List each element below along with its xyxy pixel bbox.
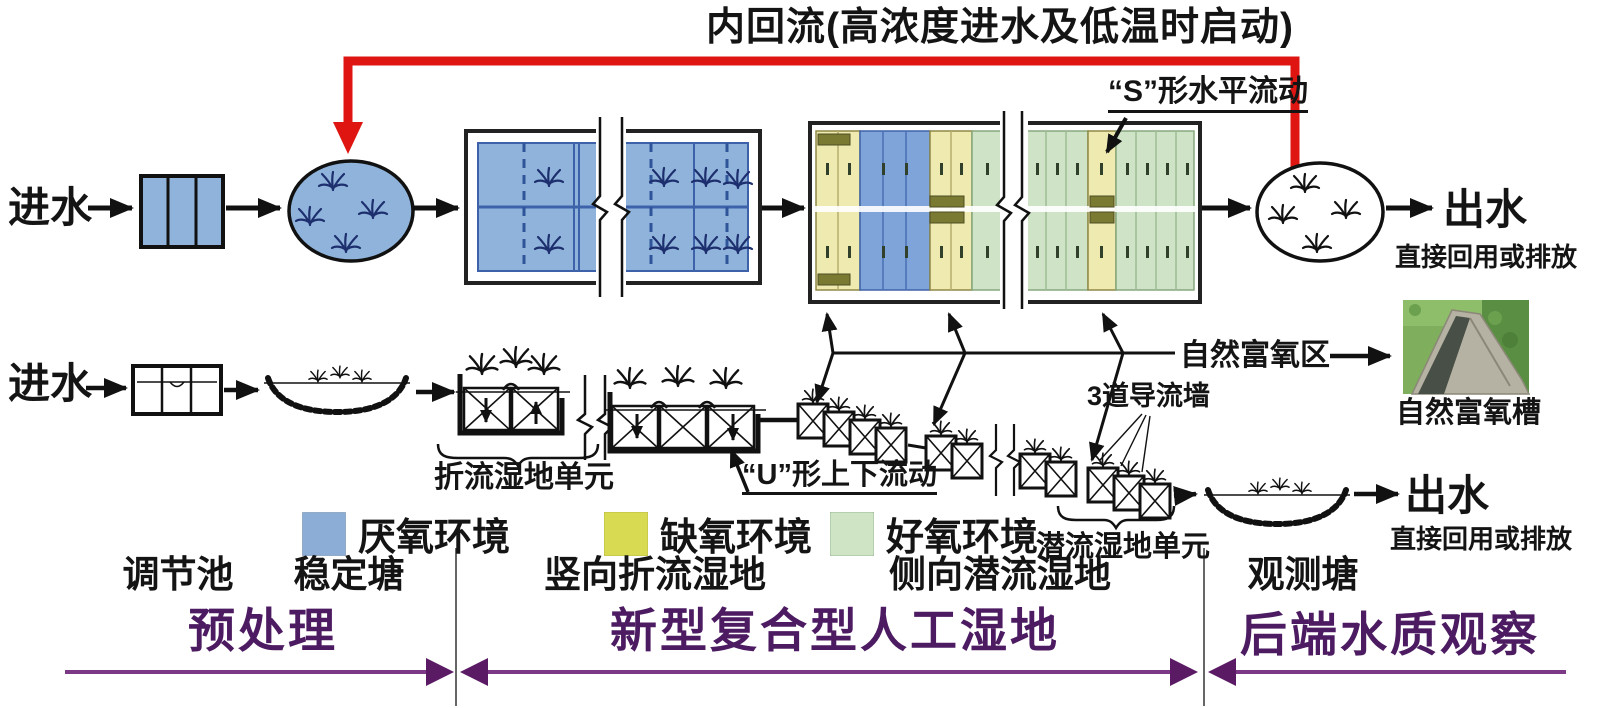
stage-label-pretreatment: 预处理 xyxy=(113,606,413,655)
legend-label-aerobic: 好氧环境 xyxy=(886,506,1038,561)
stabilization-pond-profile xyxy=(264,366,410,412)
profile-outlet-label: 出水 xyxy=(1405,474,1489,518)
aeration-channel-caption: 自然富氧槽 xyxy=(1396,398,1536,428)
unit-label-stabilization-pond: 稳定塘 xyxy=(279,556,419,595)
anaerobic-swatch-icon xyxy=(302,512,346,556)
wetland-process-diagram: 内回流(高浓度进水及低温时启动) 进水 出水 直接回用或排放 “S”形水平流动 … xyxy=(0,0,1600,708)
observation-pond-profile xyxy=(1204,478,1350,524)
lateral-subsurface-wetland-plan xyxy=(810,111,1200,311)
recirculation-arrowhead xyxy=(333,122,363,154)
aeration-channel-photo xyxy=(1403,300,1529,394)
baffle-unit-label: 折流湿地单元 xyxy=(434,462,610,494)
legend-label-anaerobic: 厌氧环境 xyxy=(358,506,510,561)
stage-arrow-lines xyxy=(65,658,1566,686)
guide-wall-label: 3道导流墙 xyxy=(1087,382,1210,410)
legend-item-aerobic: 好氧环境 xyxy=(830,506,1038,561)
legend-label-anoxic: 缺氧环境 xyxy=(660,506,812,561)
diagram-title: 内回流(高浓度进水及低温时启动) xyxy=(610,8,1390,49)
diagram-canvas xyxy=(0,0,1600,708)
regulating-tank-profile xyxy=(133,366,221,414)
observation-pond-plan xyxy=(1257,163,1383,261)
plan-outlet-note: 直接回用或排放 xyxy=(1395,244,1577,271)
aerobic-swatch-icon xyxy=(830,512,874,556)
unit-label-observation-pond: 观测塘 xyxy=(1233,556,1373,595)
legend-item-anoxic: 缺氧环境 xyxy=(604,506,812,561)
anoxic-swatch-icon xyxy=(604,512,648,556)
stabilization-pond-plan xyxy=(289,161,413,261)
legend-item-anaerobic: 厌氧环境 xyxy=(302,506,510,561)
unit-label-regulating-tank: 调节池 xyxy=(108,556,248,595)
profile-inlet-label: 进水 xyxy=(8,362,92,406)
unit-label-lateral-subsurface-wetland: 侧向潜流湿地 xyxy=(886,556,1114,595)
baffle-wetland-profile xyxy=(456,347,766,460)
stage-label-composite-wetland: 新型复合型人工湿地 xyxy=(610,606,1050,655)
s-flow-label: “S”形水平流动 xyxy=(1108,76,1308,113)
unit-label-vertical-baffle-wetland: 竖向折流湿地 xyxy=(541,556,769,595)
vertical-baffle-wetland-plan xyxy=(466,117,760,297)
plan-outlet-label: 出水 xyxy=(1443,188,1527,232)
aeration-zone-label: 自然富氧区 xyxy=(1180,340,1330,372)
u-flow-label: “U”形上下流动 xyxy=(742,460,937,495)
stage-label-backend-observation: 后端水质观察 xyxy=(1240,610,1540,659)
regulating-tank-plan xyxy=(141,176,223,247)
plan-inlet-label: 进水 xyxy=(8,186,92,230)
profile-outlet-note: 直接回用或排放 xyxy=(1390,526,1572,553)
